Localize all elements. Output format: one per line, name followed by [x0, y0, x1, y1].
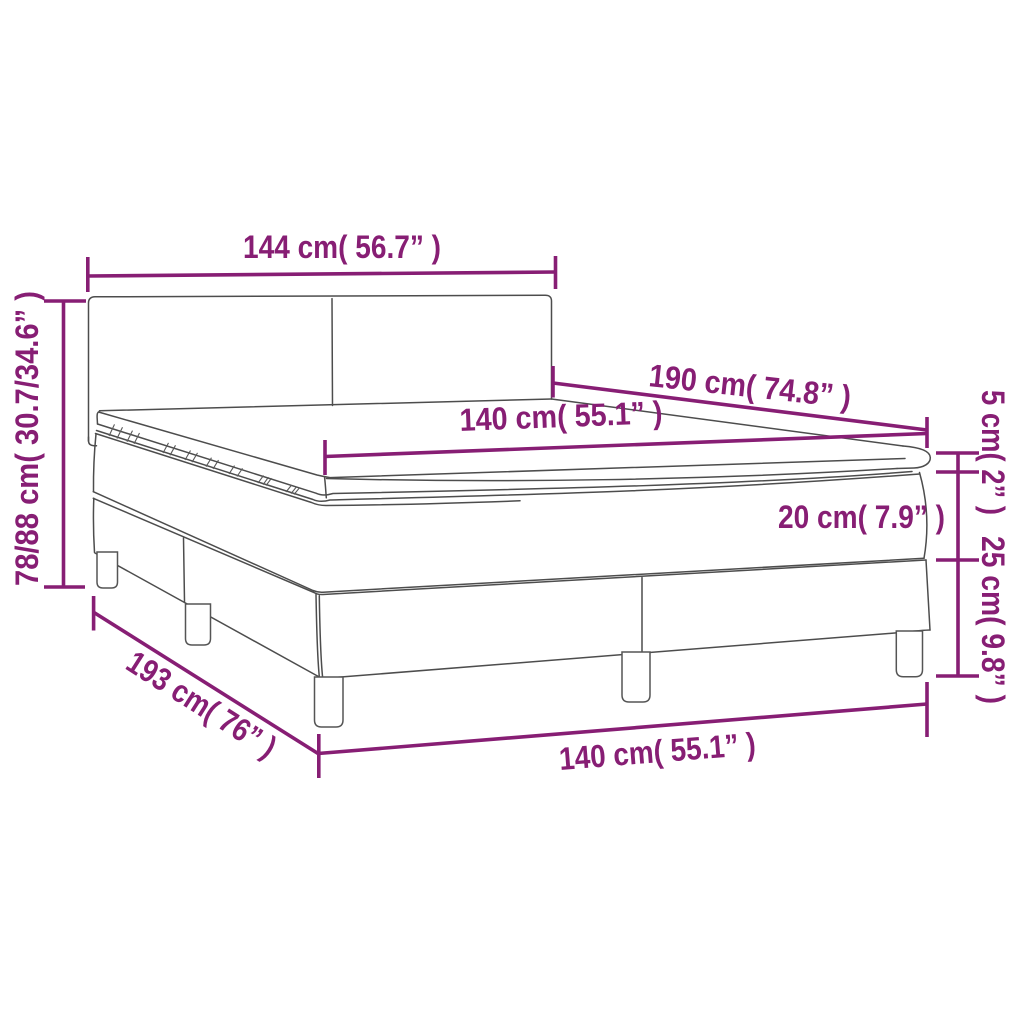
svg-text:25 cm( 9.8” ): 25 cm( 9.8” ): [975, 536, 1011, 704]
svg-text:20 cm( 7.9” ): 20 cm( 7.9” ): [778, 499, 945, 535]
svg-text:78/88 cm( 30.7/34.6” ): 78/88 cm( 30.7/34.6” ): [9, 291, 45, 586]
svg-text:5 cm( 2” ): 5 cm( 2” ): [975, 390, 1011, 515]
svg-text:144 cm( 56.7” ): 144 cm( 56.7” ): [243, 229, 441, 265]
